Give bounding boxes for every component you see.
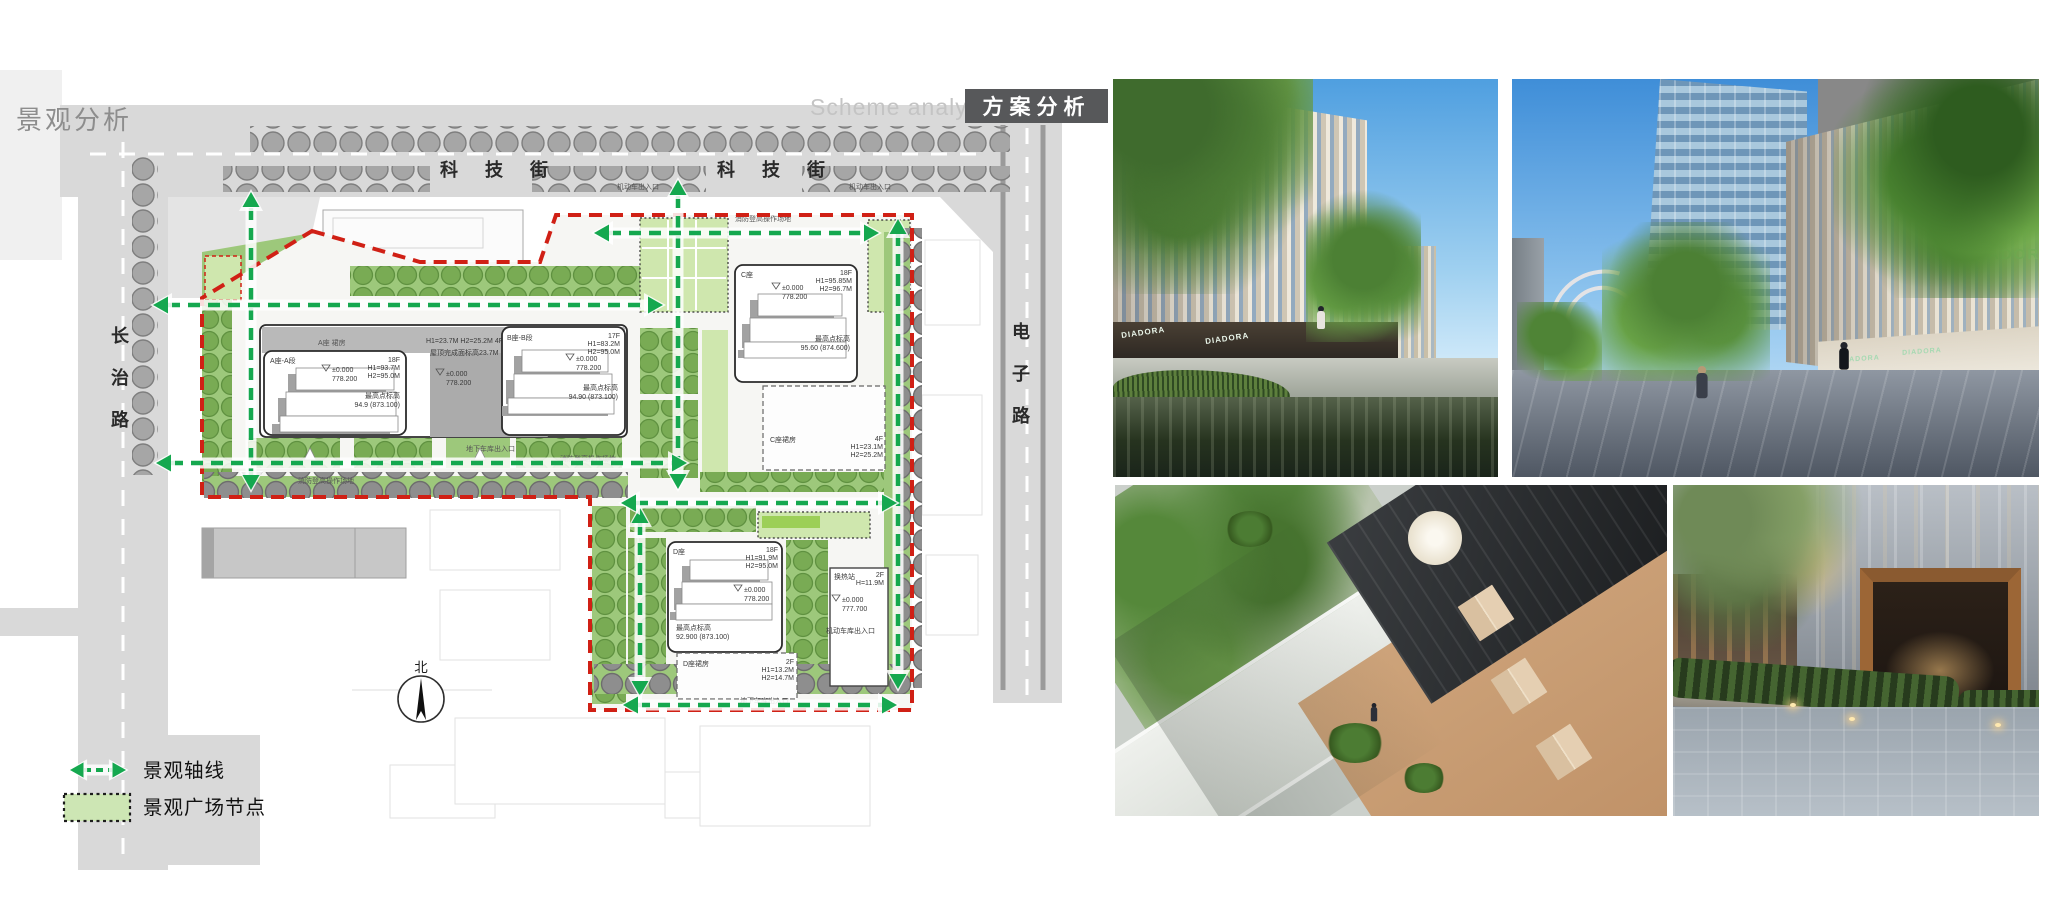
svg-text:±0.000: ±0.000 xyxy=(332,367,353,374)
svg-text:778.200: 778.200 xyxy=(782,294,807,301)
svg-text:H=11.9M: H=11.9M xyxy=(856,580,884,587)
svg-text:92.900 (873.100): 92.900 (873.100) xyxy=(676,634,729,641)
svg-text:±0.000: ±0.000 xyxy=(744,587,765,594)
svg-text:地下车库出入口: 地下车库出入口 xyxy=(466,444,515,453)
svg-text:18F: 18F xyxy=(388,357,400,364)
street-label-keji-east: 科 技 街 xyxy=(717,156,836,182)
shrub xyxy=(1402,763,1446,793)
tree-canopy xyxy=(1602,222,1771,381)
svg-text:±0.000: ±0.000 xyxy=(446,371,467,378)
svg-text:777.700: 777.700 xyxy=(842,606,867,613)
svg-text:95.60 (874.600): 95.60 (874.600) xyxy=(801,345,850,352)
svg-text:最高点标高: 最高点标高 xyxy=(676,623,711,632)
tower-d-podium: D座裙房 2F H1=13.2M H2=14.7M xyxy=(677,653,797,699)
street-label-keji-west: 科 技 街 xyxy=(440,156,559,182)
presentation-slide: { "header": { "title": "景观分析", "scheme_e… xyxy=(0,0,2048,911)
svg-text:最高点标高: 最高点标高 xyxy=(815,334,850,343)
svg-text:H2=95.0M: H2=95.0M xyxy=(368,373,401,380)
svg-text:D座: D座 xyxy=(673,547,685,556)
tree-canopy xyxy=(1673,485,1863,651)
paving xyxy=(1512,370,2039,477)
svg-text:2F: 2F xyxy=(786,659,794,666)
street-label-changzhi: 长治路 xyxy=(106,326,132,452)
svg-text:C座: C座 xyxy=(741,270,753,279)
svg-text:778.200: 778.200 xyxy=(744,596,769,603)
svg-text:最高点标高: 最高点标高 xyxy=(365,391,400,400)
heat-station: 换热站 2F H=11.9M ±0.000 777.700 机动车库出入口 xyxy=(826,568,888,686)
storefront-sign: DIADORA xyxy=(1902,347,1942,357)
tower-b: B座-B段 17F H1=83.2M H2=95.0M ±0.000 778.2… xyxy=(502,327,625,435)
page-title: 景观分析 xyxy=(16,100,132,137)
podium-ab-label: A座 裙房 xyxy=(318,338,346,347)
svg-text:H2=95.0M: H2=95.0M xyxy=(746,563,779,570)
svg-text:最高点标高: 最高点标高 xyxy=(583,383,618,392)
tower-c-podium: C座裙房 4F H1=23.1M H2=25.2M xyxy=(763,386,885,470)
svg-text:屋顶完成面标高23.7M: 屋顶完成面标高23.7M xyxy=(430,348,499,357)
tree-canopy xyxy=(1113,79,1313,294)
svg-text:18F: 18F xyxy=(766,547,778,554)
svg-text:2F: 2F xyxy=(876,572,884,579)
rendering-photo-pedestrian-street: DIADORA DIADORA DIADORA xyxy=(1512,79,2039,477)
svg-text:17F: 17F xyxy=(608,333,620,340)
svg-text:94.90 (873.100): 94.90 (873.100) xyxy=(569,394,618,401)
north-compass: 北 xyxy=(352,660,492,722)
svg-text:±0.000: ±0.000 xyxy=(576,356,597,363)
svg-text:H2=14.7M: H2=14.7M xyxy=(762,675,795,682)
legend-axis-label: 景观轴线 xyxy=(143,760,225,782)
svg-text:H1=23.1M: H1=23.1M xyxy=(851,444,884,451)
svg-text:消防登高操作场地: 消防登高操作场地 xyxy=(298,476,354,485)
north-label: 北 xyxy=(414,660,428,675)
storefront-sign: DIADORA xyxy=(1205,331,1250,346)
paving xyxy=(1673,707,2039,816)
canal-water xyxy=(1113,397,1498,477)
svg-text:H1=23.7M H2=25.2M 4F: H1=23.7M H2=25.2M 4F xyxy=(426,338,503,345)
legend-node-label: 景观广场节点 xyxy=(143,797,266,819)
storefront-sign: DIADORA xyxy=(1121,325,1166,340)
rendering-photo-canal-street: DIADORA DIADORA xyxy=(1113,79,1498,477)
svg-text:A座-A段: A座-A段 xyxy=(270,356,296,365)
legend-node-item: 景观广场节点 xyxy=(64,794,266,821)
svg-text:778.200: 778.200 xyxy=(576,365,601,372)
svg-text:18F: 18F xyxy=(840,270,852,277)
svg-text:H1=13.2M: H1=13.2M xyxy=(762,667,795,674)
svg-text:4F: 4F xyxy=(875,436,883,443)
svg-text:±0.000: ±0.000 xyxy=(782,285,803,292)
tower-c: C座 18F H1=95.85M H2=96.7M ±0.000 778.200… xyxy=(735,265,857,382)
svg-text:94.9 (873.100): 94.9 (873.100) xyxy=(354,402,400,409)
svg-text:±0.000: ±0.000 xyxy=(842,597,863,604)
svg-text:778.200: 778.200 xyxy=(446,380,471,387)
rendering-photo-aerial-plaza xyxy=(1115,485,1667,816)
rendering-photo-evening-courtyard xyxy=(1673,485,2039,816)
svg-text:H2=95.0M: H2=95.0M xyxy=(588,349,621,356)
svg-text:H1=83.2M: H1=83.2M xyxy=(588,341,621,348)
svg-text:H1=95.85M: H1=95.85M xyxy=(816,278,853,285)
site-plan: A座 裙房 H1=23.7M H2=25.2M 4F 屋顶完成面标高23.7M … xyxy=(0,0,1065,911)
svg-text:D座裙房: D座裙房 xyxy=(683,659,709,668)
tree-canopy xyxy=(1833,79,2039,298)
svg-text:H1=93.7M: H1=93.7M xyxy=(368,365,401,372)
svg-text:H2=96.7M: H2=96.7M xyxy=(820,286,853,293)
garage-entrance-label: 机动车库出入口 xyxy=(826,626,875,635)
svg-text:机动车出入口: 机动车出入口 xyxy=(617,182,659,191)
tree-canopy xyxy=(1517,302,1601,382)
svg-text:H2=25.2M: H2=25.2M xyxy=(851,452,884,459)
shrub xyxy=(1325,723,1385,763)
svg-text:换热站: 换热站 xyxy=(834,572,855,581)
svg-text:H1=91.9M: H1=91.9M xyxy=(746,555,779,562)
street-label-dianzi: 电子路 xyxy=(1007,322,1033,448)
svg-text:机动车出入口: 机动车出入口 xyxy=(849,182,891,191)
svg-text:C座裙房: C座裙房 xyxy=(770,435,796,444)
scheme-analysis-badge: 方案分析 xyxy=(965,89,1108,123)
svg-text:778.200: 778.200 xyxy=(332,376,357,383)
svg-text:B座-B段: B座-B段 xyxy=(507,333,533,342)
tower-d: D座 18F H1=91.9M H2=95.0M ±0.000 778.200 … xyxy=(668,542,782,652)
tower-a: A座-A段 18F H1=93.7M H2=95.0M ±0.000 778.2… xyxy=(264,351,406,435)
uplight xyxy=(1849,717,1855,721)
